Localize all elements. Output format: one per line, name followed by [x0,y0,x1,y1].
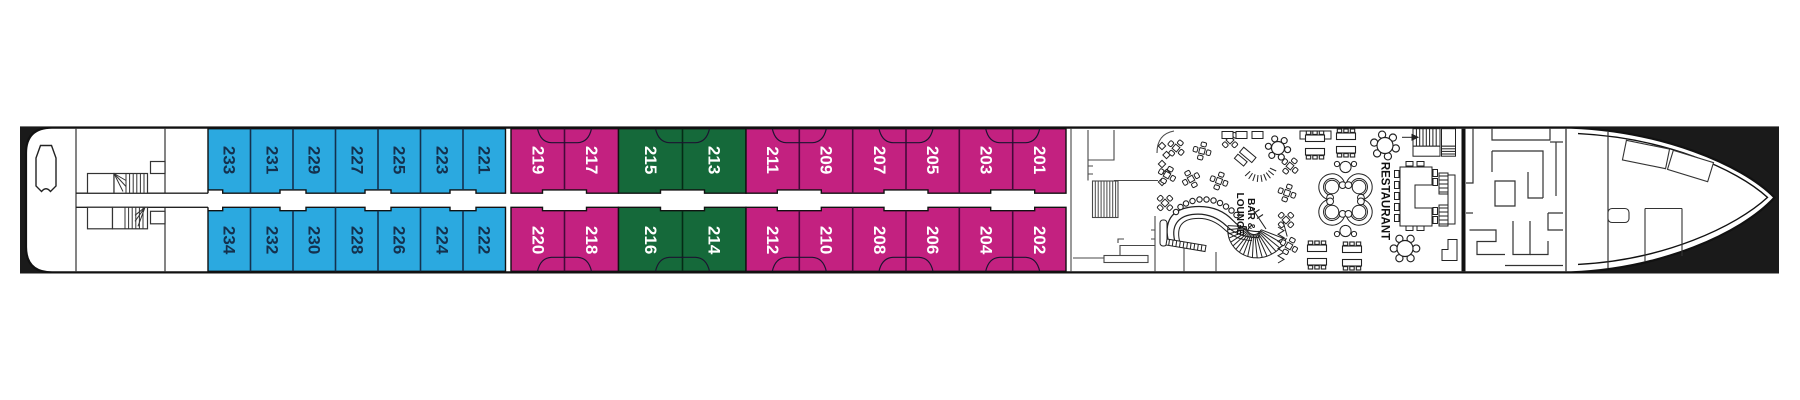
svg-text:214: 214 [705,226,724,255]
svg-text:204: 204 [977,226,996,255]
svg-text:207: 207 [870,146,889,174]
svg-text:216: 216 [641,226,660,254]
svg-text:203: 203 [977,146,996,174]
svg-text:234: 234 [220,226,239,255]
svg-text:205: 205 [923,146,942,174]
svg-text:208: 208 [870,226,889,254]
svg-text:232: 232 [262,226,281,254]
svg-text:212: 212 [763,226,782,254]
svg-text:206: 206 [923,226,942,254]
svg-text:222: 222 [475,226,494,254]
svg-text:BAR &: BAR & [1245,198,1256,230]
svg-text:215: 215 [641,146,660,174]
svg-text:201: 201 [1030,146,1049,174]
svg-text:233: 233 [220,146,239,174]
svg-text:202: 202 [1030,226,1049,254]
svg-text:227: 227 [347,146,366,174]
svg-text:210: 210 [817,226,836,254]
svg-text:209: 209 [817,146,836,174]
svg-text:231: 231 [262,146,281,174]
svg-text:219: 219 [528,146,547,174]
svg-text:225: 225 [390,146,409,174]
svg-text:LOUNGE: LOUNGE [1234,193,1245,236]
svg-text:213: 213 [705,146,724,174]
svg-text:228: 228 [347,226,366,254]
svg-text:220: 220 [528,226,547,254]
svg-text:229: 229 [305,146,324,174]
svg-text:226: 226 [390,226,409,254]
svg-text:217: 217 [582,146,601,174]
svg-text:223: 223 [432,146,451,174]
svg-text:211: 211 [763,146,782,173]
svg-text:230: 230 [305,226,324,254]
svg-text:RESTAURANT: RESTAURANT [1379,162,1391,240]
svg-text:218: 218 [582,226,601,254]
svg-text:224: 224 [432,226,451,255]
svg-text:221: 221 [475,146,494,174]
